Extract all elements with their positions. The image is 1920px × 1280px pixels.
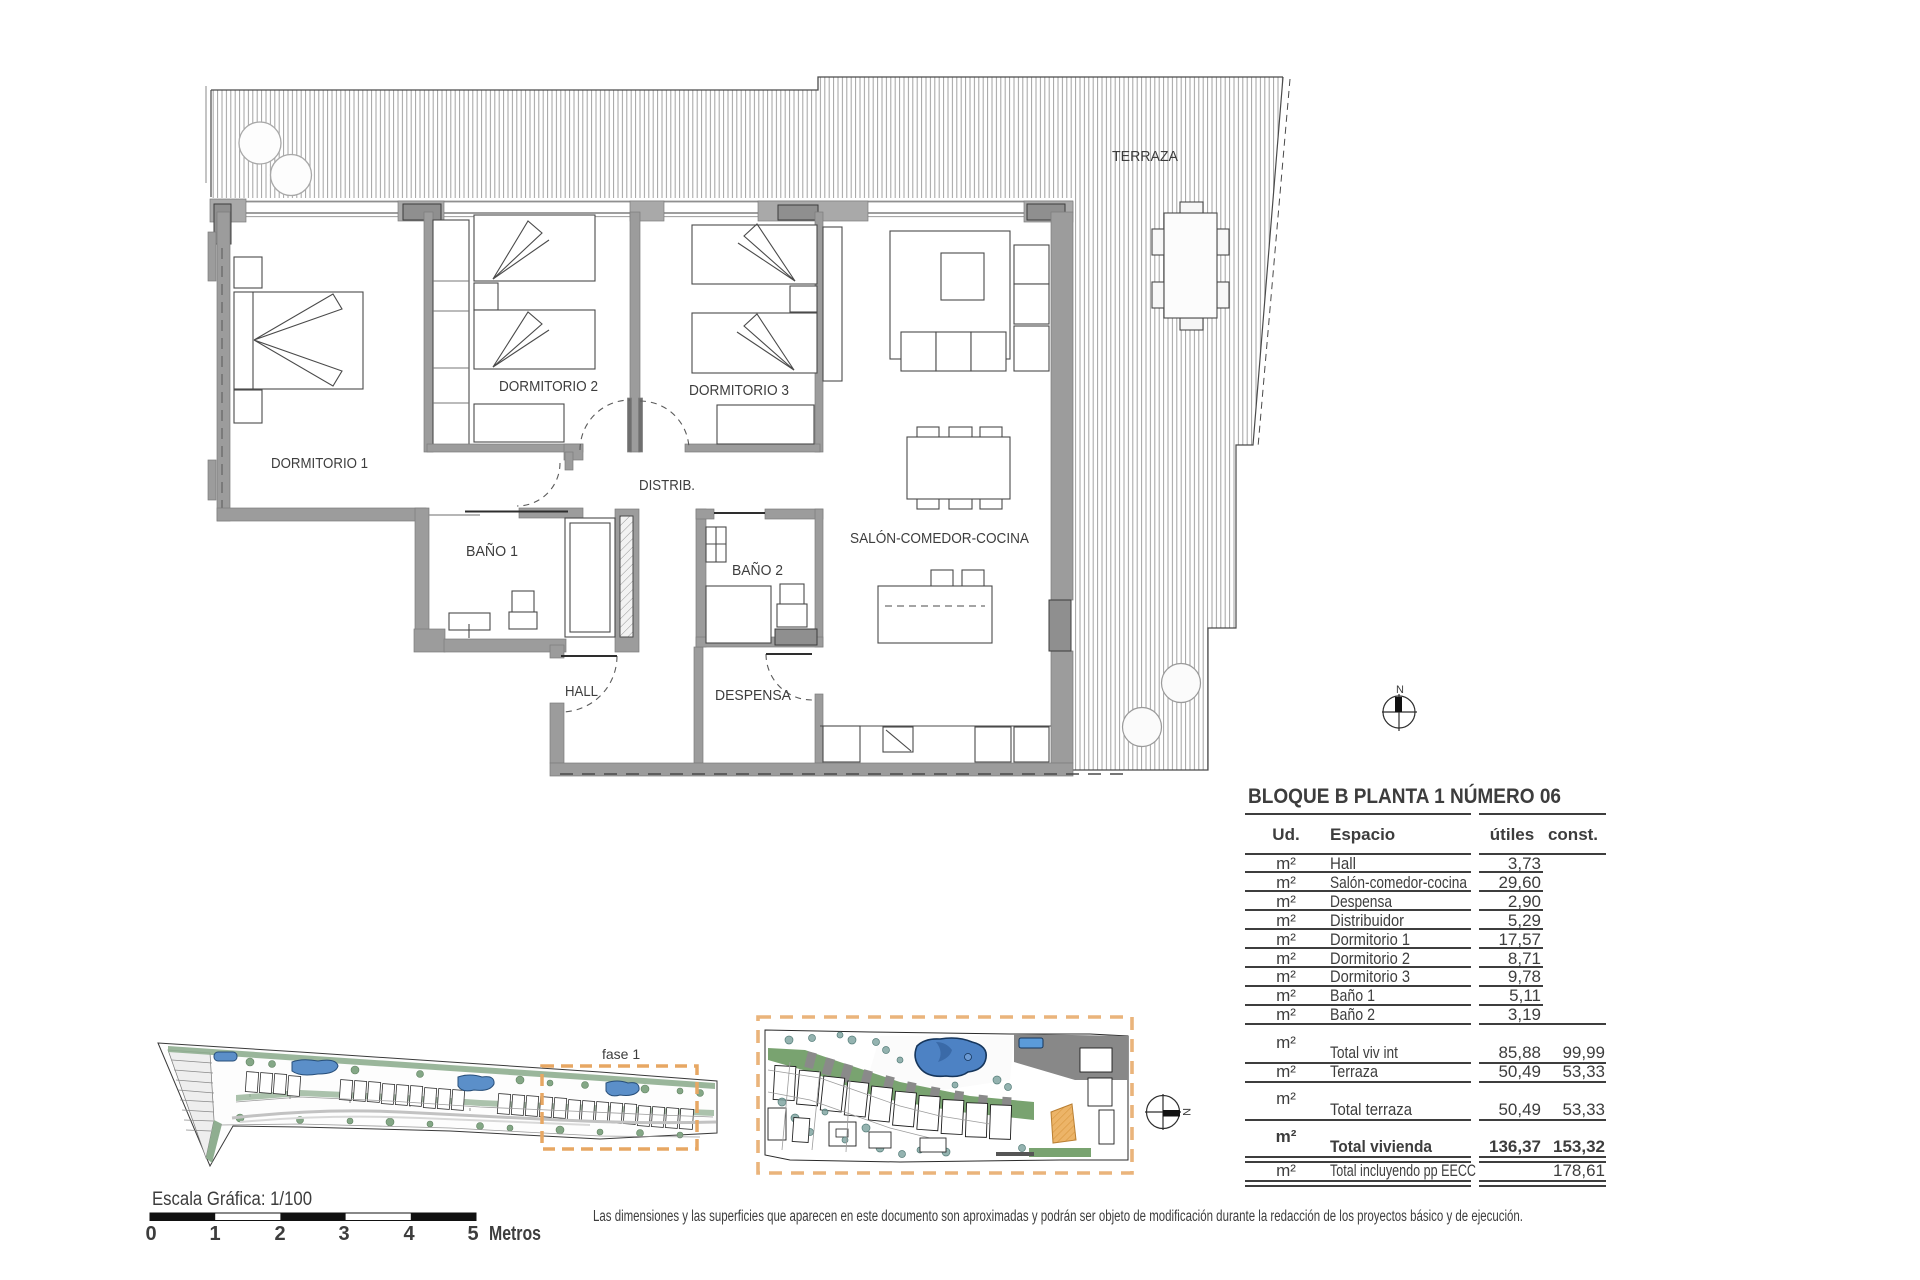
svg-text:Total viv int: Total viv int bbox=[1330, 1043, 1398, 1062]
svg-text:Escala Gráfica: 1/100: Escala Gráfica: 1/100 bbox=[152, 1189, 312, 1210]
svg-text:N: N bbox=[1396, 684, 1404, 696]
svg-text:m²: m² bbox=[1276, 949, 1296, 968]
svg-text:DORMITORIO 3: DORMITORIO 3 bbox=[689, 382, 789, 399]
svg-text:m²: m² bbox=[1276, 892, 1296, 911]
svg-text:Total vivienda: Total vivienda bbox=[1330, 1137, 1432, 1156]
svg-text:2: 2 bbox=[274, 1223, 285, 1245]
svg-text:BAÑO 2: BAÑO 2 bbox=[732, 562, 783, 579]
svg-text:53,33: 53,33 bbox=[1562, 1062, 1605, 1081]
svg-text:5,29: 5,29 bbox=[1508, 911, 1541, 930]
svg-text:53,33: 53,33 bbox=[1562, 1100, 1605, 1119]
svg-text:8,71: 8,71 bbox=[1508, 949, 1541, 968]
svg-text:3,19: 3,19 bbox=[1508, 1005, 1541, 1024]
svg-text:HALL: HALL bbox=[565, 683, 598, 700]
svg-text:m²: m² bbox=[1276, 986, 1296, 1005]
svg-text:85,88: 85,88 bbox=[1498, 1043, 1541, 1062]
svg-text:3: 3 bbox=[338, 1223, 349, 1245]
svg-text:m²: m² bbox=[1276, 930, 1296, 949]
svg-text:útiles: útiles bbox=[1490, 825, 1534, 844]
svg-text:5: 5 bbox=[467, 1223, 478, 1245]
svg-text:Terraza: Terraza bbox=[1330, 1062, 1378, 1081]
svg-text:Total incluyendo pp EECC: Total incluyendo pp EECC bbox=[1330, 1161, 1476, 1180]
svg-text:153,32: 153,32 bbox=[1553, 1137, 1605, 1156]
svg-text:178,61: 178,61 bbox=[1553, 1161, 1605, 1180]
svg-text:SALÓN-COMEDOR-COCINA: SALÓN-COMEDOR-COCINA bbox=[850, 530, 1029, 547]
svg-text:99,99: 99,99 bbox=[1562, 1043, 1605, 1062]
svg-text:Distribuidor: Distribuidor bbox=[1330, 911, 1404, 930]
svg-text:Dormitorio 2: Dormitorio 2 bbox=[1330, 949, 1410, 968]
svg-text:m²: m² bbox=[1276, 1062, 1296, 1081]
svg-text:2,90: 2,90 bbox=[1508, 892, 1541, 911]
svg-text:DORMITORIO 1: DORMITORIO 1 bbox=[271, 455, 368, 472]
svg-text:TERRAZA: TERRAZA bbox=[1112, 148, 1178, 165]
svg-text:m²: m² bbox=[1276, 1005, 1296, 1024]
svg-text:Baño 1: Baño 1 bbox=[1330, 986, 1375, 1005]
svg-text:Dormitorio 1: Dormitorio 1 bbox=[1330, 930, 1410, 949]
svg-text:m²: m² bbox=[1276, 873, 1296, 892]
svg-text:5,11: 5,11 bbox=[1509, 986, 1541, 1005]
svg-text:0: 0 bbox=[145, 1223, 156, 1245]
svg-text:Ud.: Ud. bbox=[1272, 825, 1299, 844]
svg-text:9,78: 9,78 bbox=[1508, 967, 1541, 986]
svg-text:m²: m² bbox=[1276, 967, 1296, 986]
svg-text:Salón-comedor-cocina: Salón-comedor-cocina bbox=[1330, 873, 1467, 892]
svg-text:DORMITORIO 2: DORMITORIO 2 bbox=[499, 378, 598, 395]
svg-text:Espacio: Espacio bbox=[1330, 825, 1395, 844]
svg-text:29,60: 29,60 bbox=[1498, 873, 1541, 892]
svg-text:1: 1 bbox=[209, 1223, 220, 1245]
svg-text:Hall: Hall bbox=[1330, 854, 1356, 873]
svg-text:Metros: Metros bbox=[489, 1223, 541, 1245]
svg-text:50,49: 50,49 bbox=[1498, 1062, 1541, 1081]
svg-text:m²: m² bbox=[1276, 854, 1296, 873]
svg-text:Baño 2: Baño 2 bbox=[1330, 1005, 1375, 1024]
svg-text:Dormitorio 3: Dormitorio 3 bbox=[1330, 967, 1410, 986]
svg-text:m²: m² bbox=[1276, 1161, 1296, 1180]
svg-text:17,57: 17,57 bbox=[1498, 930, 1541, 949]
svg-text:Despensa: Despensa bbox=[1330, 892, 1392, 911]
svg-text:136,37: 136,37 bbox=[1489, 1137, 1541, 1156]
svg-text:const.: const. bbox=[1548, 825, 1598, 844]
svg-text:Total terraza: Total terraza bbox=[1330, 1100, 1412, 1119]
svg-text:Las dimensiones y las superfic: Las dimensiones y las superficies que ap… bbox=[593, 1208, 1523, 1225]
svg-text:DESPENSA: DESPENSA bbox=[715, 687, 791, 704]
svg-text:m²: m² bbox=[1276, 911, 1296, 930]
svg-text:m²: m² bbox=[1276, 1033, 1296, 1052]
svg-text:m²: m² bbox=[1276, 1089, 1296, 1108]
svg-text:50,49: 50,49 bbox=[1498, 1100, 1541, 1119]
svg-text:3,73: 3,73 bbox=[1508, 854, 1541, 873]
svg-text:fase 1: fase 1 bbox=[602, 1046, 640, 1062]
svg-text:DISTRIB.: DISTRIB. bbox=[639, 477, 695, 494]
svg-text:N: N bbox=[1180, 1108, 1192, 1116]
svg-text:BAÑO 1: BAÑO 1 bbox=[466, 543, 518, 560]
svg-text:4: 4 bbox=[403, 1223, 415, 1245]
svg-text:m²: m² bbox=[1276, 1127, 1297, 1146]
svg-text:BLOQUE B PLANTA 1 NÚMERO 06: BLOQUE B PLANTA 1 NÚMERO 06 bbox=[1248, 784, 1561, 808]
